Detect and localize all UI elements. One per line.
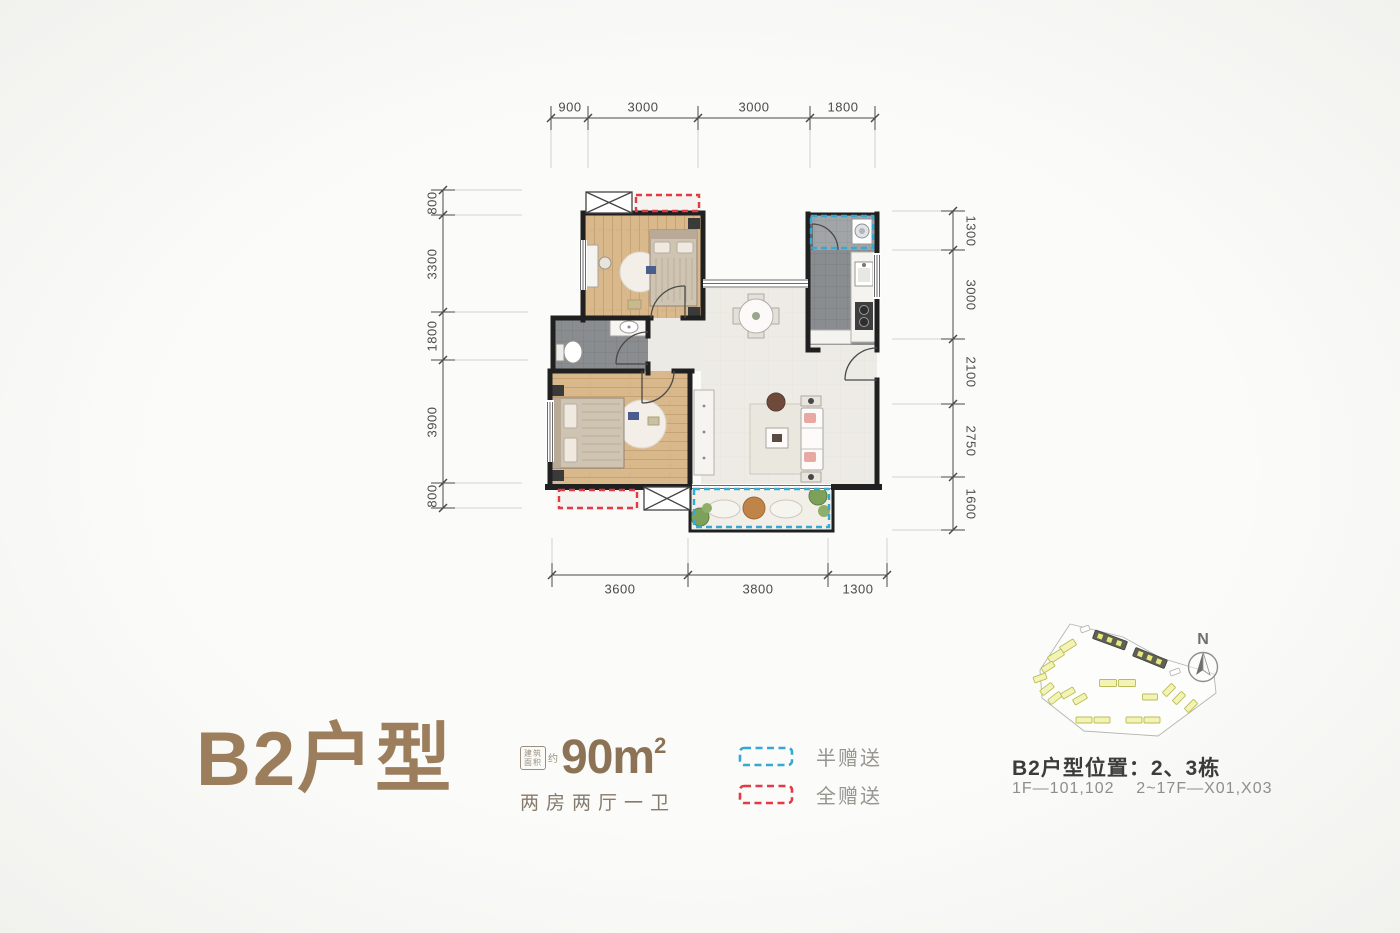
floor-plan-drawing [420, 85, 1005, 605]
dim-bottom-3: 1300 [843, 582, 874, 597]
ac-platform-top [586, 192, 632, 213]
dim-right-1: 1300 [964, 216, 979, 247]
area-value: 90m [561, 735, 654, 781]
full-gift-swatch [738, 784, 794, 805]
dim-right-3: 2100 [964, 357, 979, 388]
legend-row-full-gift: 全赠送 [738, 780, 882, 809]
area-superscript: 2 [654, 733, 666, 759]
legend-row-half-gift: 半赠送 [738, 742, 882, 771]
gift-legend: 半赠送 全赠送 [738, 742, 882, 809]
compass [1185, 648, 1221, 684]
dim-right-5: 1600 [964, 489, 979, 520]
area-approx: 约 [548, 750, 558, 765]
dim-top-4: 1800 [828, 100, 859, 115]
area-box-line1: 建筑 [524, 749, 542, 758]
dim-left-5: 800 [425, 484, 440, 507]
dim-bottom-2: 3800 [743, 582, 774, 597]
half-gift-swatch [738, 746, 794, 767]
location-title: B2户型位置：2、3栋 [1012, 752, 1220, 782]
area-box-label: 建筑 面积 [520, 746, 546, 770]
dim-left-4: 3900 [425, 407, 440, 438]
dim-left-1: 800 [425, 191, 440, 214]
ac-platform-bottom [644, 487, 690, 510]
dim-left-2: 3300 [425, 249, 440, 280]
dim-right-4: 2750 [964, 426, 979, 457]
washer [852, 219, 872, 244]
dim-left-3: 1800 [425, 321, 440, 352]
dim-top-1: 900 [558, 100, 581, 115]
layout-description: 两房两厅一卫 [520, 788, 676, 815]
area-block: 建筑 面积 约 90m 2 两房两厅一卫 [520, 735, 676, 815]
corridor-floor [648, 318, 703, 371]
location-detail: 1F—101,102 2~17F—X01,X03 [1012, 780, 1272, 798]
room-floors [550, 194, 877, 531]
dim-right-2: 3000 [964, 280, 979, 311]
floorplan-page: 900 3000 3000 1800 800 3300 1800 3900 80… [0, 0, 1400, 933]
half-gift-label: 半赠送 [816, 742, 882, 771]
compass-north-label: N [1197, 631, 1209, 649]
dim-top-3: 3000 [739, 100, 770, 115]
dim-top-2: 3000 [628, 100, 659, 115]
unit-title: B2户型 [196, 722, 496, 798]
full-gift-label: 全赠送 [816, 780, 882, 809]
dim-bottom-1: 3600 [605, 582, 636, 597]
area-box-line2: 面积 [524, 758, 542, 767]
